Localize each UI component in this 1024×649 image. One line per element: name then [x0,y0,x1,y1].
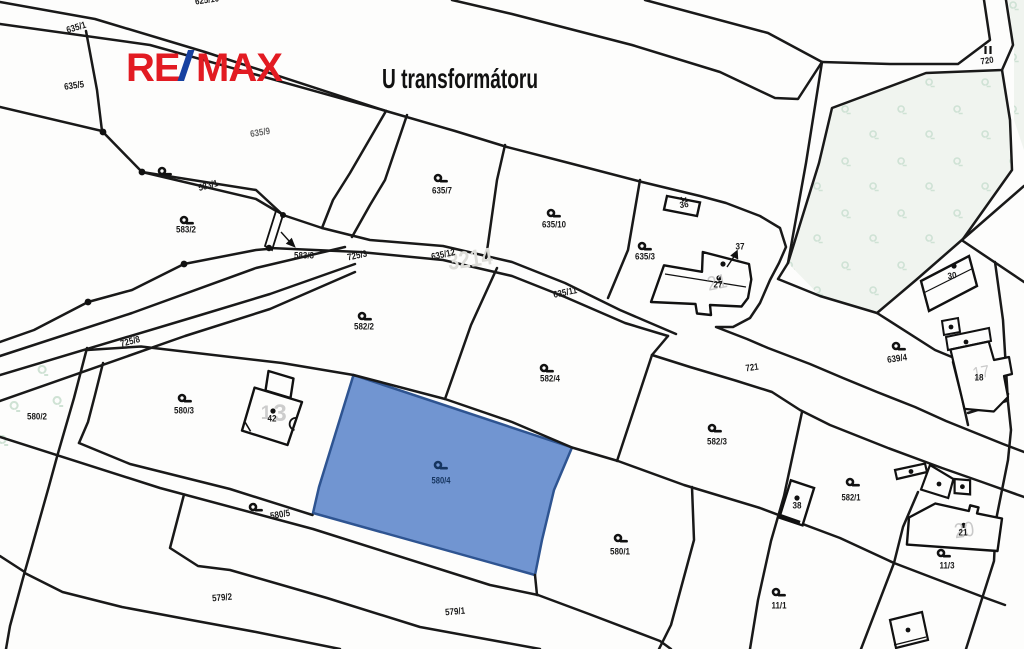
svg-text:580/2: 580/2 [27,412,47,423]
svg-text:579/2: 579/2 [212,592,233,605]
svg-text:37: 37 [736,242,745,252]
svg-text:635/10: 635/10 [542,220,566,231]
svg-text:721: 721 [745,362,760,375]
svg-text:580/3: 580/3 [174,406,194,417]
svg-text:36: 36 [679,199,689,210]
svg-text:582/3: 582/3 [707,437,727,448]
svg-text:720: 720 [980,55,994,67]
svg-text:11/3: 11/3 [940,561,955,572]
svg-text:11/1: 11/1 [772,601,788,612]
svg-text:38: 38 [793,501,802,511]
svg-text:580/1: 580/1 [610,547,631,558]
svg-text:U transformátoru: U transformátoru [382,63,538,94]
svg-text:583/3: 583/3 [294,251,314,262]
svg-text:635/7: 635/7 [432,186,452,197]
svg-text:582/2: 582/2 [354,322,374,333]
svg-text:635/3: 635/3 [635,252,655,263]
svg-text:RE: RE [126,46,180,90]
svg-text:42: 42 [268,414,277,424]
svg-text:583/2: 583/2 [176,225,196,236]
svg-text:580/4: 580/4 [432,476,452,487]
svg-text:MAX: MAX [196,46,283,90]
svg-text:27: 27 [714,280,723,290]
svg-text:21: 21 [959,528,968,538]
svg-text:582/4: 582/4 [540,374,561,385]
svg-text:18: 18 [975,373,984,383]
svg-text:30: 30 [947,270,957,281]
svg-text:582/1: 582/1 [842,493,862,504]
svg-text:579/1: 579/1 [445,606,466,619]
